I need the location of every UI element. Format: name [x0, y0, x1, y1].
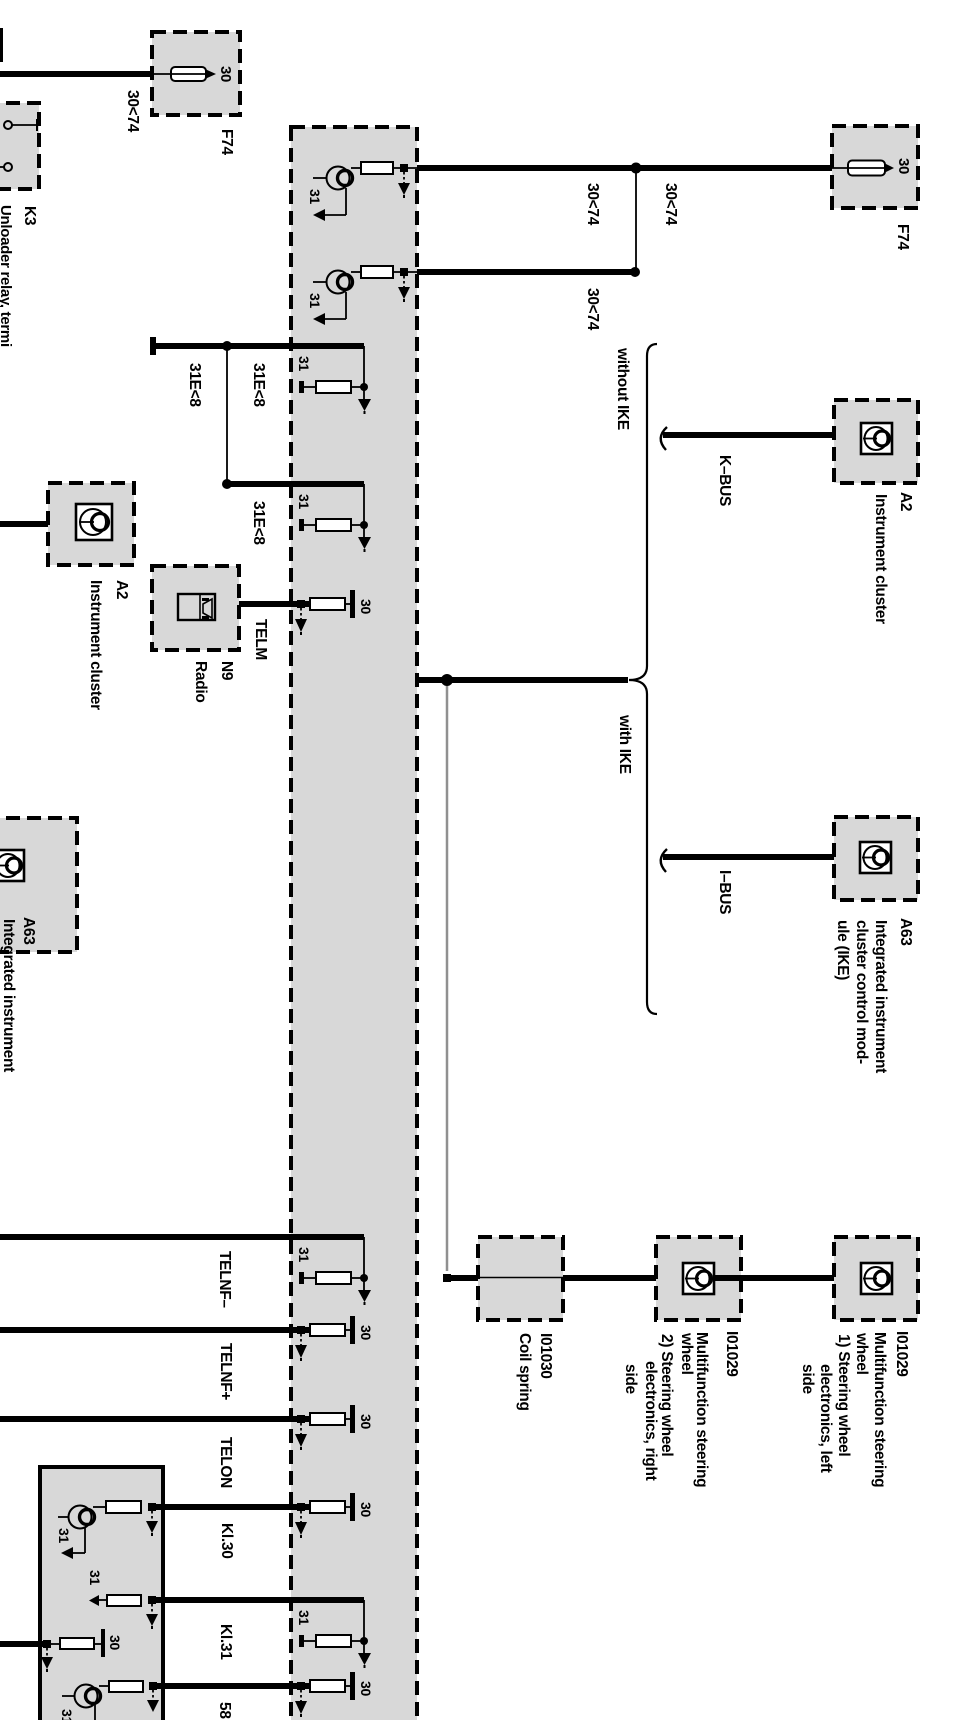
svg-text:electronics, right: electronics, right: [642, 1361, 659, 1481]
svg-text:F74: F74: [218, 129, 235, 155]
svg-text:A63: A63: [20, 917, 37, 945]
svg-text:Coil spring: Coil spring: [516, 1333, 533, 1411]
svg-text:cluster control mod-: cluster control mod-: [853, 920, 870, 1064]
svg-text:A63: A63: [897, 918, 914, 946]
svg-text:31: 31: [59, 1709, 75, 1720]
svg-text:30<74: 30<74: [584, 183, 601, 226]
svg-text:31: 31: [87, 1570, 103, 1585]
svg-text:K3: K3: [21, 206, 38, 226]
svg-text:30: 30: [358, 1325, 374, 1340]
svg-text:Instrument cluster: Instrument cluster: [87, 580, 104, 710]
svg-text:31: 31: [296, 356, 312, 371]
svg-text:Integrated instrument: Integrated instrument: [872, 920, 889, 1073]
svg-text:30: 30: [358, 1502, 374, 1517]
svg-text:without IKE: without IKE: [614, 347, 631, 430]
svg-text:30: 30: [358, 1414, 374, 1429]
svg-text:Kl.31: Kl.31: [217, 1624, 234, 1660]
svg-text:30: 30: [107, 1635, 123, 1650]
svg-text:with IKE: with IKE: [616, 714, 633, 774]
svg-text:30<74: 30<74: [124, 90, 141, 133]
svg-text:58: 58: [216, 1702, 233, 1719]
svg-text:K–BUS: K–BUS: [716, 455, 733, 506]
svg-text:TELON: TELON: [217, 1437, 234, 1488]
svg-text:31E<8: 31E<8: [186, 363, 203, 407]
svg-text:Integrated instrument: Integrated instrument: [0, 919, 17, 1072]
svg-text:31: 31: [307, 293, 323, 308]
svg-text:30: 30: [895, 158, 912, 174]
svg-text:I01029: I01029: [893, 1331, 910, 1377]
svg-text:Unloader relay, termi: Unloader relay, termi: [0, 205, 14, 347]
svg-text:30<74: 30<74: [662, 183, 679, 226]
svg-text:I01029: I01029: [723, 1331, 740, 1377]
svg-text:N9: N9: [218, 661, 235, 681]
svg-text:30: 30: [358, 1681, 374, 1696]
svg-text:side: side: [622, 1364, 639, 1394]
svg-text:wheel: wheel: [853, 1332, 870, 1375]
svg-text:electronics, left: electronics, left: [817, 1364, 834, 1473]
svg-text:31E<8: 31E<8: [250, 363, 267, 407]
svg-text:31: 31: [307, 189, 323, 204]
svg-text:Radio: Radio: [192, 661, 209, 703]
svg-text:30: 30: [358, 599, 374, 614]
svg-text:30<74: 30<74: [584, 288, 601, 331]
svg-text:TELNF–: TELNF–: [216, 1251, 233, 1308]
svg-text:31E<8: 31E<8: [250, 501, 267, 545]
svg-text:A2: A2: [897, 492, 914, 511]
svg-text:F74: F74: [894, 224, 911, 250]
svg-text:31: 31: [56, 1528, 72, 1543]
svg-text:31: 31: [296, 1247, 312, 1262]
svg-text:ule (IKE): ule (IKE): [834, 920, 851, 980]
svg-text:I01030: I01030: [537, 1333, 554, 1379]
svg-text:I–BUS: I–BUS: [716, 870, 733, 914]
svg-text:TELM: TELM: [252, 619, 269, 660]
svg-text:31: 31: [296, 1610, 312, 1625]
svg-text:wheel: wheel: [678, 1332, 695, 1375]
svg-text:TELNF+: TELNF+: [217, 1343, 234, 1400]
svg-text:Instrument cluster: Instrument cluster: [872, 494, 889, 624]
svg-text:side: side: [799, 1364, 816, 1394]
svg-text:2) Steering wheel: 2) Steering wheel: [658, 1334, 675, 1456]
svg-text:Kl.30: Kl.30: [218, 1523, 235, 1559]
svg-text:1) Steering wheel: 1) Steering wheel: [835, 1334, 852, 1456]
svg-text:Multifunction steering: Multifunction steering: [871, 1332, 888, 1487]
svg-text:30: 30: [217, 66, 234, 82]
svg-text:31: 31: [296, 494, 312, 509]
svg-text:A2: A2: [113, 580, 130, 599]
